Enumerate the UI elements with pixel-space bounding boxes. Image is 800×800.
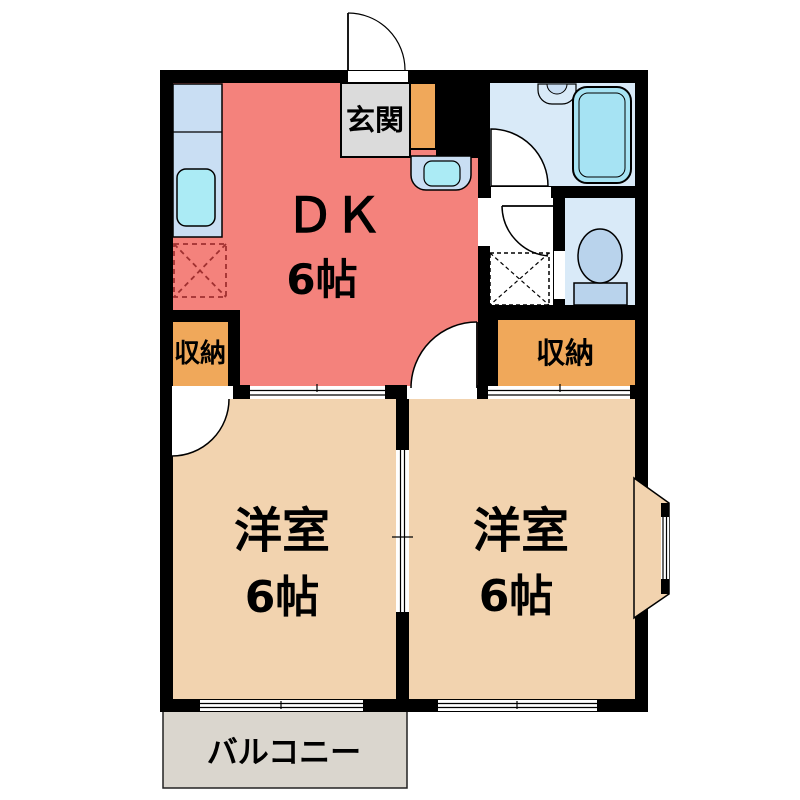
wall-sanitary-bottom <box>478 305 648 320</box>
dk-label: ＤＫ <box>286 188 382 244</box>
floor-plan: 玄関 ＤＫ 6帖 収納 収納 洋室 6帖 洋室 6帖 バルコニー <box>0 0 800 800</box>
bathroom-doorway-sill <box>491 187 551 198</box>
wall-seg-b <box>385 385 407 399</box>
storage-right-sliding-door <box>488 386 630 399</box>
room-right-size: 6帖 <box>479 571 554 622</box>
storage-left-label: 収納 <box>174 338 226 369</box>
room-left-size: 6帖 <box>245 572 320 623</box>
bay-window-glass <box>661 517 669 579</box>
entrance-door-arc <box>348 13 405 70</box>
wall-storage-left-right <box>228 310 240 387</box>
room-left-label: 洋室 <box>234 503 330 559</box>
entrance-label: 玄関 <box>346 103 404 137</box>
wall-storage-right-left <box>478 320 498 387</box>
wall-room-divider-top <box>396 399 409 450</box>
bay-window-post-bottom <box>661 579 669 594</box>
washbasin-sink <box>424 161 460 186</box>
toilet-tank <box>574 283 627 305</box>
wall-dk-washroom-lower <box>478 246 490 312</box>
balcony-label: バルコニー <box>207 735 361 771</box>
kitchen-sink <box>177 169 215 226</box>
bathtub <box>573 87 631 183</box>
wall-seg-a <box>233 385 250 399</box>
wall-room-divider-bottom <box>396 612 409 699</box>
room-divider-sliding-door <box>397 450 408 612</box>
storage-right-label: 収納 <box>536 336 594 370</box>
wall-left <box>160 70 173 712</box>
washing-machine-space <box>490 253 549 305</box>
room-right-label: 洋室 <box>473 503 569 559</box>
wall-duct-block <box>436 83 490 158</box>
wall-seg-d <box>630 385 648 399</box>
bay-window-post-top <box>661 503 669 517</box>
washroom-doorway-sill <box>479 198 490 246</box>
toilet-doorway-sill <box>554 251 565 299</box>
shoe-cabinet <box>410 83 436 149</box>
floor-plan-svg: 玄関 ＤＫ 6帖 収納 収納 洋室 6帖 洋室 6帖 バルコニー <box>0 0 800 800</box>
entrance-doorway-sill <box>348 71 408 82</box>
closet-left-opening <box>172 386 233 399</box>
toilet-bowl <box>578 229 622 283</box>
dk-size-label: 6帖 <box>286 255 357 304</box>
bay-window <box>634 478 669 618</box>
